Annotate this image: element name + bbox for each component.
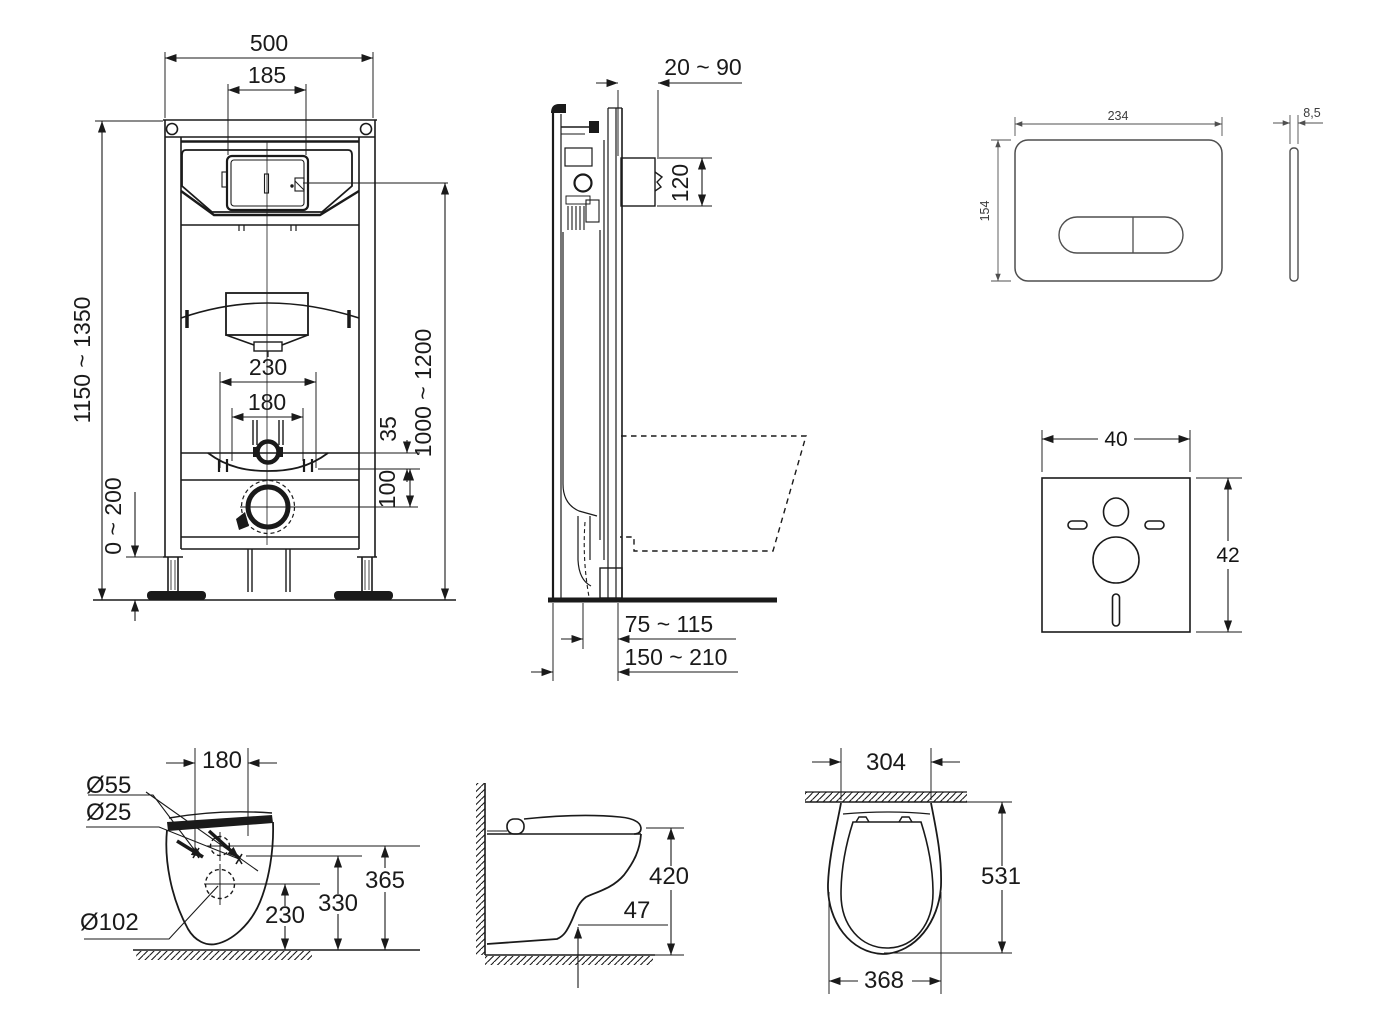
- pad-slot-right: [1145, 521, 1164, 529]
- supply-connection: [575, 175, 592, 192]
- inspection-window-inner: [231, 160, 304, 206]
- installation-drawing: 500 185 1150 ~ 1350 0 ~ 200 230 180 35 1…: [0, 0, 1400, 1034]
- dim-depth-total: 150 ~ 210: [625, 644, 728, 670]
- rear-floor-hatch: [136, 951, 312, 960]
- pad-body: [1042, 478, 1190, 632]
- pad-hole-top: [1104, 498, 1129, 526]
- support-tabs: [239, 225, 296, 231]
- adjustable-feet: [168, 557, 372, 592]
- dim-width: 368: [864, 967, 904, 994]
- pad-slot-bottom: [1113, 594, 1120, 626]
- inspection-window: [227, 156, 308, 210]
- dim-plate-thickness: 8,5: [1303, 106, 1320, 120]
- flush-pipe-inlet: [258, 442, 279, 463]
- valve-block: [586, 200, 599, 222]
- toilet-rear-view: 180 Ø55 Ø25 Ø102 365 330 230: [80, 747, 420, 960]
- bowl-outer-outline: [828, 803, 941, 954]
- dim-height-mid: 330: [318, 890, 358, 917]
- pad-hole-center: [1093, 537, 1139, 583]
- dim-flush-cutout: 120: [667, 164, 693, 202]
- side-toilet-extensions: [646, 828, 684, 955]
- dim-frame-width: 500: [250, 30, 288, 56]
- dim-plate-width: 234: [1108, 109, 1129, 123]
- valve-stack: [568, 206, 584, 230]
- center-struts: [248, 549, 290, 592]
- wall-hatch: [476, 783, 485, 955]
- bolt-axis: [146, 792, 258, 871]
- flush-button: [1059, 217, 1183, 253]
- seat-lid: [524, 815, 641, 834]
- dim-bracket-spacing: 230: [249, 354, 287, 380]
- mount-hole-right: [361, 124, 372, 135]
- dim-clearance: 47: [624, 897, 651, 924]
- flush-bend-cutout: [621, 158, 655, 206]
- sound-insulation-pad: 40 42: [1042, 428, 1242, 632]
- dim-wall-width: 304: [866, 749, 906, 776]
- frame-rails: [163, 120, 377, 557]
- technical-drawing-page: 500 185 1150 ~ 1350 0 ~ 200 230 180 35 1…: [0, 0, 1400, 1034]
- bottom-crossbars: [181, 537, 359, 549]
- base-plate-right: [334, 591, 393, 600]
- dim-pad-height: 42: [1216, 544, 1239, 567]
- dim-height-outlet: 230: [265, 902, 305, 929]
- frame-side-view: 20 ~ 90 120 75 ~ 115 150 ~ 210: [531, 54, 806, 681]
- dim-depth-front: 75 ~ 115: [625, 611, 713, 637]
- flush-plate-profile: [1290, 148, 1298, 281]
- rail-top-hook: [551, 104, 566, 113]
- base-plate-left: [147, 591, 206, 600]
- floor-hatch-side: [485, 956, 653, 965]
- pad-slot-left: [1068, 521, 1087, 529]
- feet-detail: [171, 560, 369, 590]
- funnel-grate: [254, 342, 282, 351]
- bowl-profile: [487, 834, 641, 944]
- seat-buffer: [507, 819, 524, 834]
- dim-plate-height: 154: [978, 201, 992, 222]
- dim-depth: 531: [981, 863, 1021, 890]
- seat-inner-outline: [841, 822, 933, 948]
- inlet-lug-left: [253, 447, 258, 457]
- wall-hatch-top: [805, 792, 967, 802]
- leader-d25: [86, 827, 239, 859]
- cutout-tip: [655, 172, 662, 191]
- dim-offset-top: 35: [375, 416, 401, 442]
- flush-plate-side: 8,5: [1273, 106, 1323, 281]
- tank-inner-wall: [563, 232, 597, 516]
- bowl-silhouette-dashed: [620, 436, 806, 551]
- dim-rear-bolt-spacing: 180: [202, 747, 242, 774]
- label-drill-bolt: Ø25: [86, 799, 131, 826]
- foot-block: [600, 568, 622, 598]
- toilet-side-view: 420 47: [476, 783, 689, 988]
- dim-height-top: 365: [365, 867, 405, 894]
- dim-frame-height: 1150 ~ 1350: [69, 297, 95, 424]
- bracket-hooks: [187, 310, 349, 328]
- fill-valve-detail: [295, 181, 304, 190]
- pad-extension-lines: [1042, 430, 1242, 632]
- inlet-lug-right: [278, 447, 283, 457]
- dim-toilet-height: 420: [649, 863, 689, 890]
- top-connector: [589, 121, 599, 133]
- plate-extension-lines: [991, 117, 1222, 281]
- dim-outlet-height: 1000 ~ 1200: [410, 329, 436, 458]
- front-rail-lines: [608, 108, 622, 598]
- frame-front-view: 500 185 1150 ~ 1350 0 ~ 200 230 180 35 1…: [69, 30, 456, 621]
- tank-front-walls: [600, 140, 604, 560]
- top-view-extension-lines: [829, 748, 941, 994]
- label-drill-outlet: Ø102: [80, 909, 139, 936]
- label-drill-seat: Ø55: [86, 772, 131, 799]
- flush-plate-body: [1015, 140, 1222, 281]
- mount-hole-left: [167, 124, 178, 135]
- bowl-bracket-shoulder: [181, 303, 359, 318]
- dim-wall-distance: 20 ~ 90: [664, 54, 741, 80]
- dim-window-width: 185: [248, 62, 286, 88]
- dim-pad-width: 40: [1104, 428, 1127, 451]
- toilet-top-view: 304 531 368: [805, 748, 1021, 994]
- dim-bolt-spacing: 180: [248, 389, 286, 415]
- dim-offset-drain: 100: [374, 470, 400, 508]
- flush-plate-front: 234 154: [978, 109, 1222, 281]
- valve-body: [565, 148, 592, 166]
- fill-valve-dot: [290, 184, 293, 187]
- window-slot: [265, 174, 269, 193]
- bowl-back-rim: [843, 812, 930, 814]
- drain-pipe-dashed: [584, 522, 589, 597]
- dim-leg-adjust: 0 ~ 200: [100, 477, 126, 554]
